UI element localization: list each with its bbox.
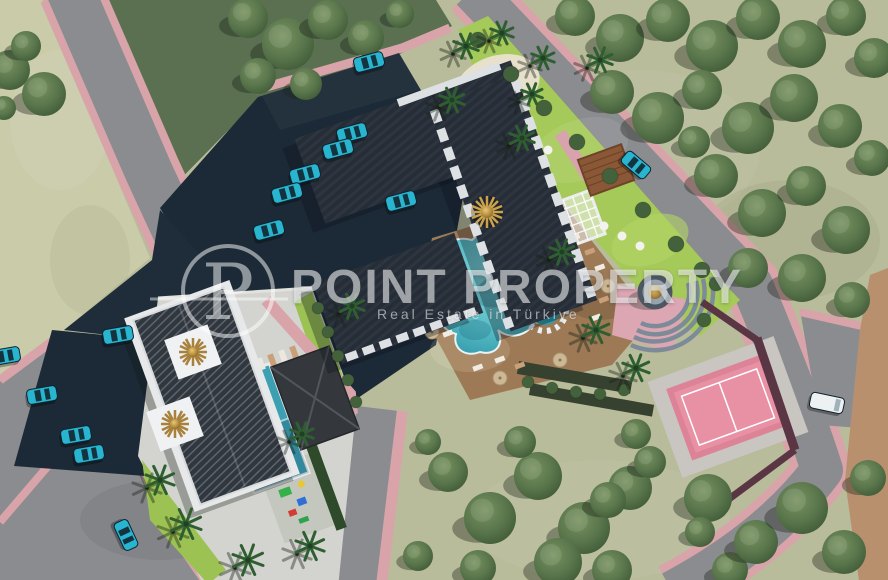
bush xyxy=(697,313,711,327)
road-south xyxy=(352,408,374,580)
bush xyxy=(570,386,582,398)
bush xyxy=(594,388,606,400)
bush xyxy=(536,100,552,116)
bush xyxy=(312,302,324,314)
bush xyxy=(350,396,362,408)
bush xyxy=(332,350,344,362)
bush xyxy=(602,168,618,184)
bush xyxy=(635,202,651,218)
bush xyxy=(522,376,534,388)
site-plan-render: P POINT PROPERTY Real Estate in Türkiye xyxy=(0,0,888,580)
bush xyxy=(322,326,334,338)
bush xyxy=(694,262,710,278)
bush xyxy=(342,374,354,386)
bush xyxy=(668,236,684,252)
roof-sunburst xyxy=(471,196,503,228)
bush xyxy=(569,134,585,150)
scene-svg xyxy=(0,0,888,580)
bush xyxy=(546,382,558,394)
bush xyxy=(503,66,519,82)
